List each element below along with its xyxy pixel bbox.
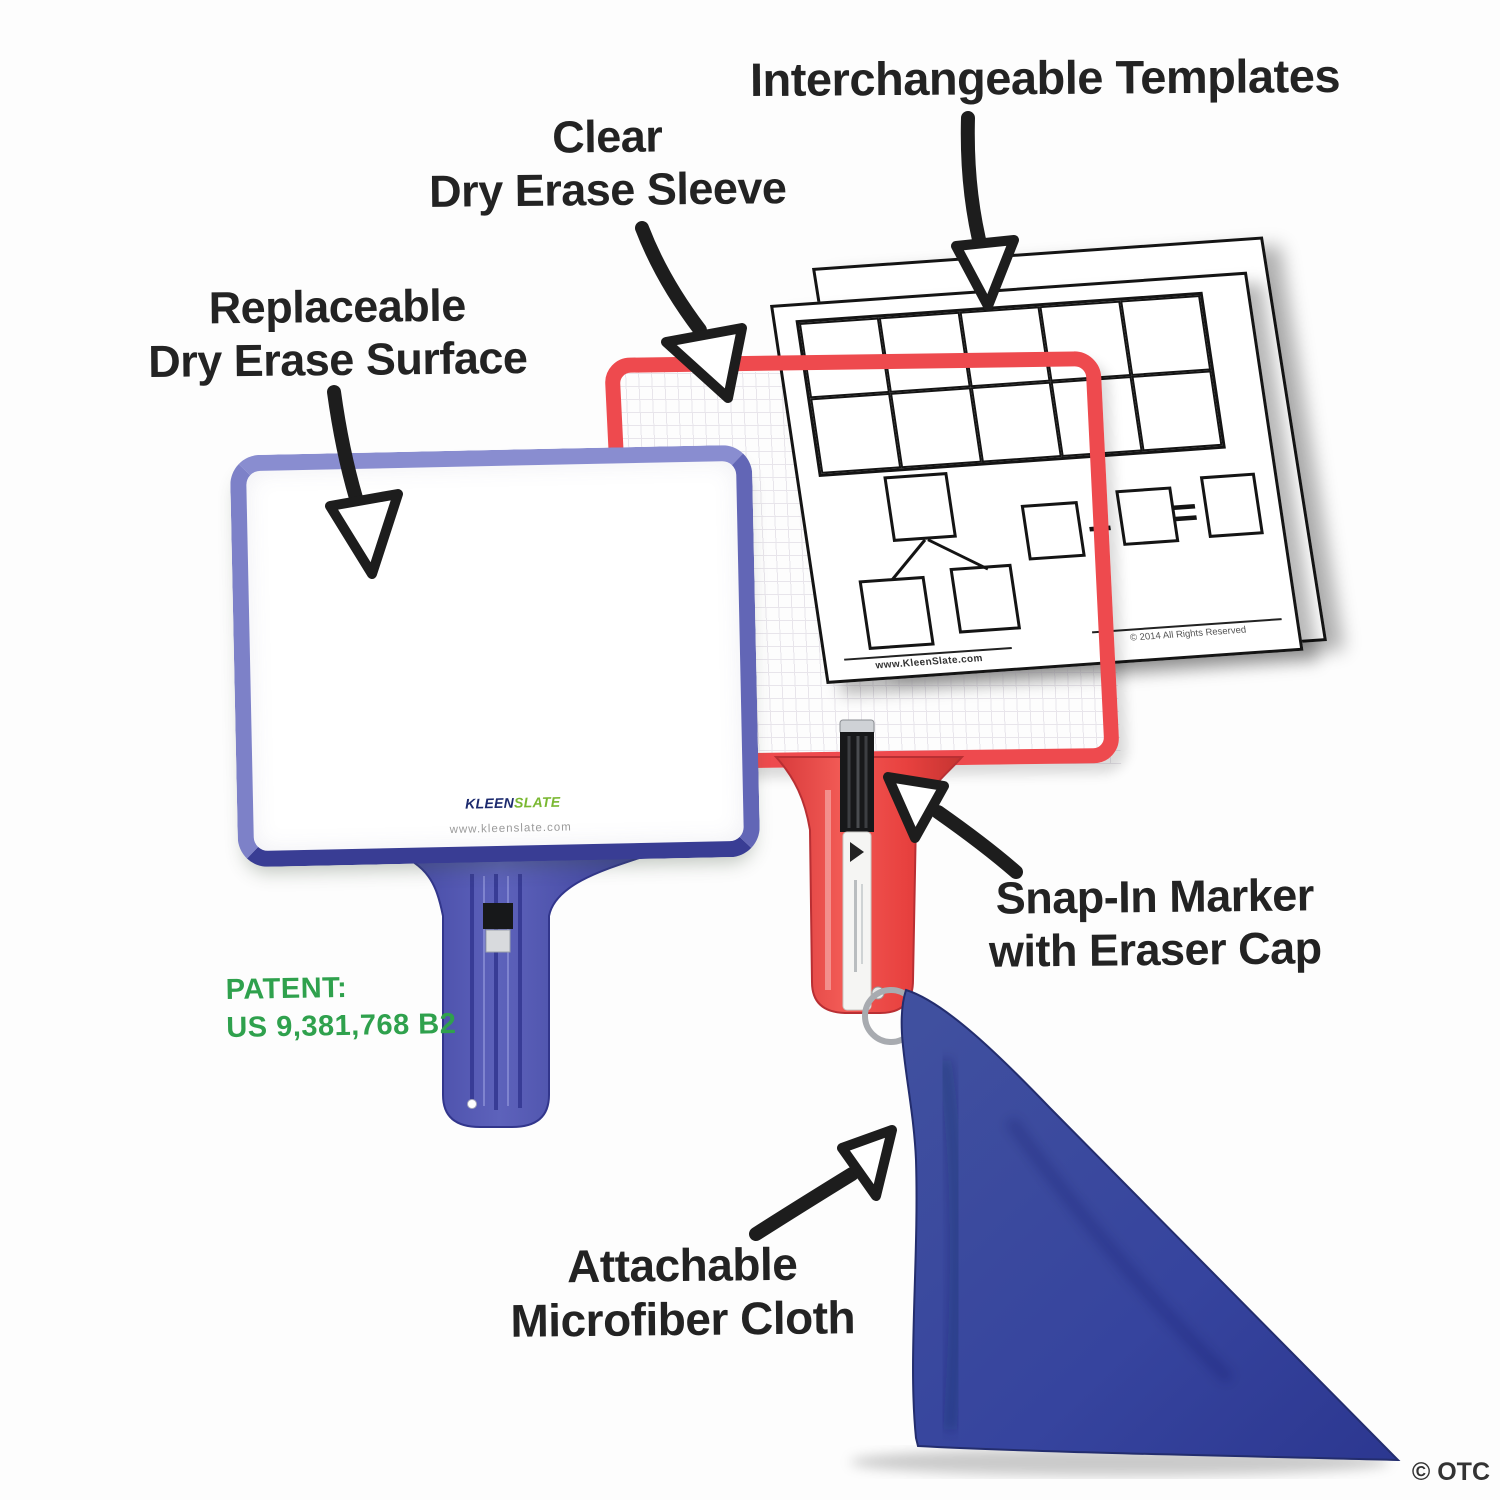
cloth-label: Attachable Microfiber Cloth: [449, 1236, 915, 1349]
sleeve-label: Clear Dry Erase Sleeve: [399, 108, 815, 219]
otc-credit: © OTC: [1360, 1458, 1490, 1487]
surface-down-arrow-icon: [330, 392, 398, 574]
sleeve-label-line2: Dry Erase Sleeve: [400, 161, 816, 218]
sleeve-label-line1: Clear: [399, 108, 815, 165]
cloth-up-right-arrow-icon: [756, 1130, 892, 1234]
patent-line2: US 9,381,768 B2: [226, 1006, 457, 1048]
templates-label: Interchangeable Templates: [700, 48, 1390, 108]
surface-label: Replaceable Dry Erase Surface: [99, 278, 575, 389]
marker-label-line2: with Eraser Cap: [930, 921, 1381, 979]
surface-label-line2: Dry Erase Surface: [100, 331, 576, 389]
sleeve-down-right-arrow-icon: [642, 228, 742, 398]
cloth-label-line1: Attachable: [449, 1236, 915, 1295]
templates-down-arrow-icon: [956, 118, 1014, 306]
marker-label-line1: Snap-In Marker: [929, 868, 1380, 926]
marker-up-left-arrow-icon: [888, 777, 1016, 872]
patent-line1: PATENT:: [225, 968, 456, 1010]
cloth-label-line2: Microfiber Cloth: [450, 1290, 916, 1349]
product-annotation-scene: + = www.KleenSlate.com © 2014 All Rights…: [0, 0, 1500, 1500]
patent-label: PATENT: US 9,381,768 B2: [225, 968, 456, 1047]
surface-label-line1: Replaceable: [99, 278, 575, 336]
marker-label: Snap-In Marker with Eraser Cap: [929, 868, 1380, 979]
